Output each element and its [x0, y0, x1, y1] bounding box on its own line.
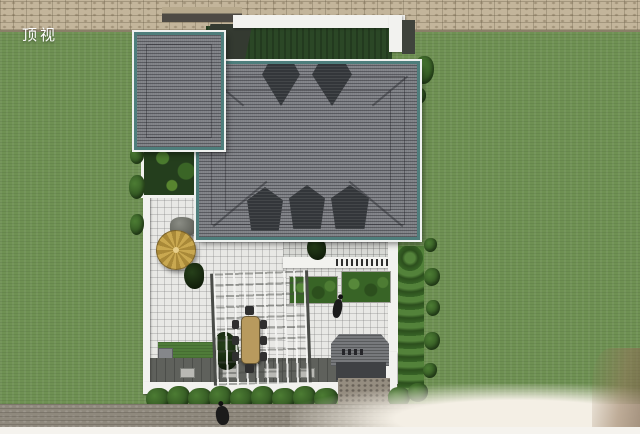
right-hedge-strip — [398, 246, 424, 392]
top-view-rendering: 顶视 — [0, 0, 640, 434]
roof-deck-parapet-right — [389, 15, 402, 52]
main-hip-roof — [196, 61, 420, 240]
roof-ridge-line — [146, 44, 212, 138]
chair — [245, 364, 254, 373]
gate-sign-marks — [342, 349, 366, 355]
chair — [260, 352, 267, 361]
roof-hip-line — [372, 75, 409, 106]
bush — [424, 332, 440, 350]
upper-wall-right — [402, 20, 415, 54]
roof-dormer — [289, 185, 325, 229]
view-label: 顶视 — [22, 24, 58, 45]
roof-wing — [134, 32, 224, 150]
bush — [426, 300, 440, 316]
chair — [260, 336, 267, 345]
chair — [232, 352, 239, 361]
chair — [260, 320, 267, 329]
dining-table — [241, 316, 260, 364]
image-bottom-edge — [0, 427, 640, 434]
roof-dormer — [262, 64, 300, 106]
bare-ground-corner — [592, 348, 640, 434]
chair — [232, 320, 239, 329]
dark-plant — [184, 263, 204, 289]
bush — [130, 214, 144, 235]
bush — [423, 363, 437, 378]
chair — [232, 336, 239, 345]
stepping-stone — [180, 368, 195, 378]
chair — [245, 306, 254, 315]
terrace-plant — [307, 237, 326, 260]
hedge-planter — [341, 271, 391, 303]
roof-deck-parapet-top — [233, 15, 405, 28]
roof-dormer — [312, 64, 352, 106]
stone-capped-wall — [162, 7, 242, 22]
bush — [424, 268, 440, 286]
bush — [424, 238, 437, 252]
